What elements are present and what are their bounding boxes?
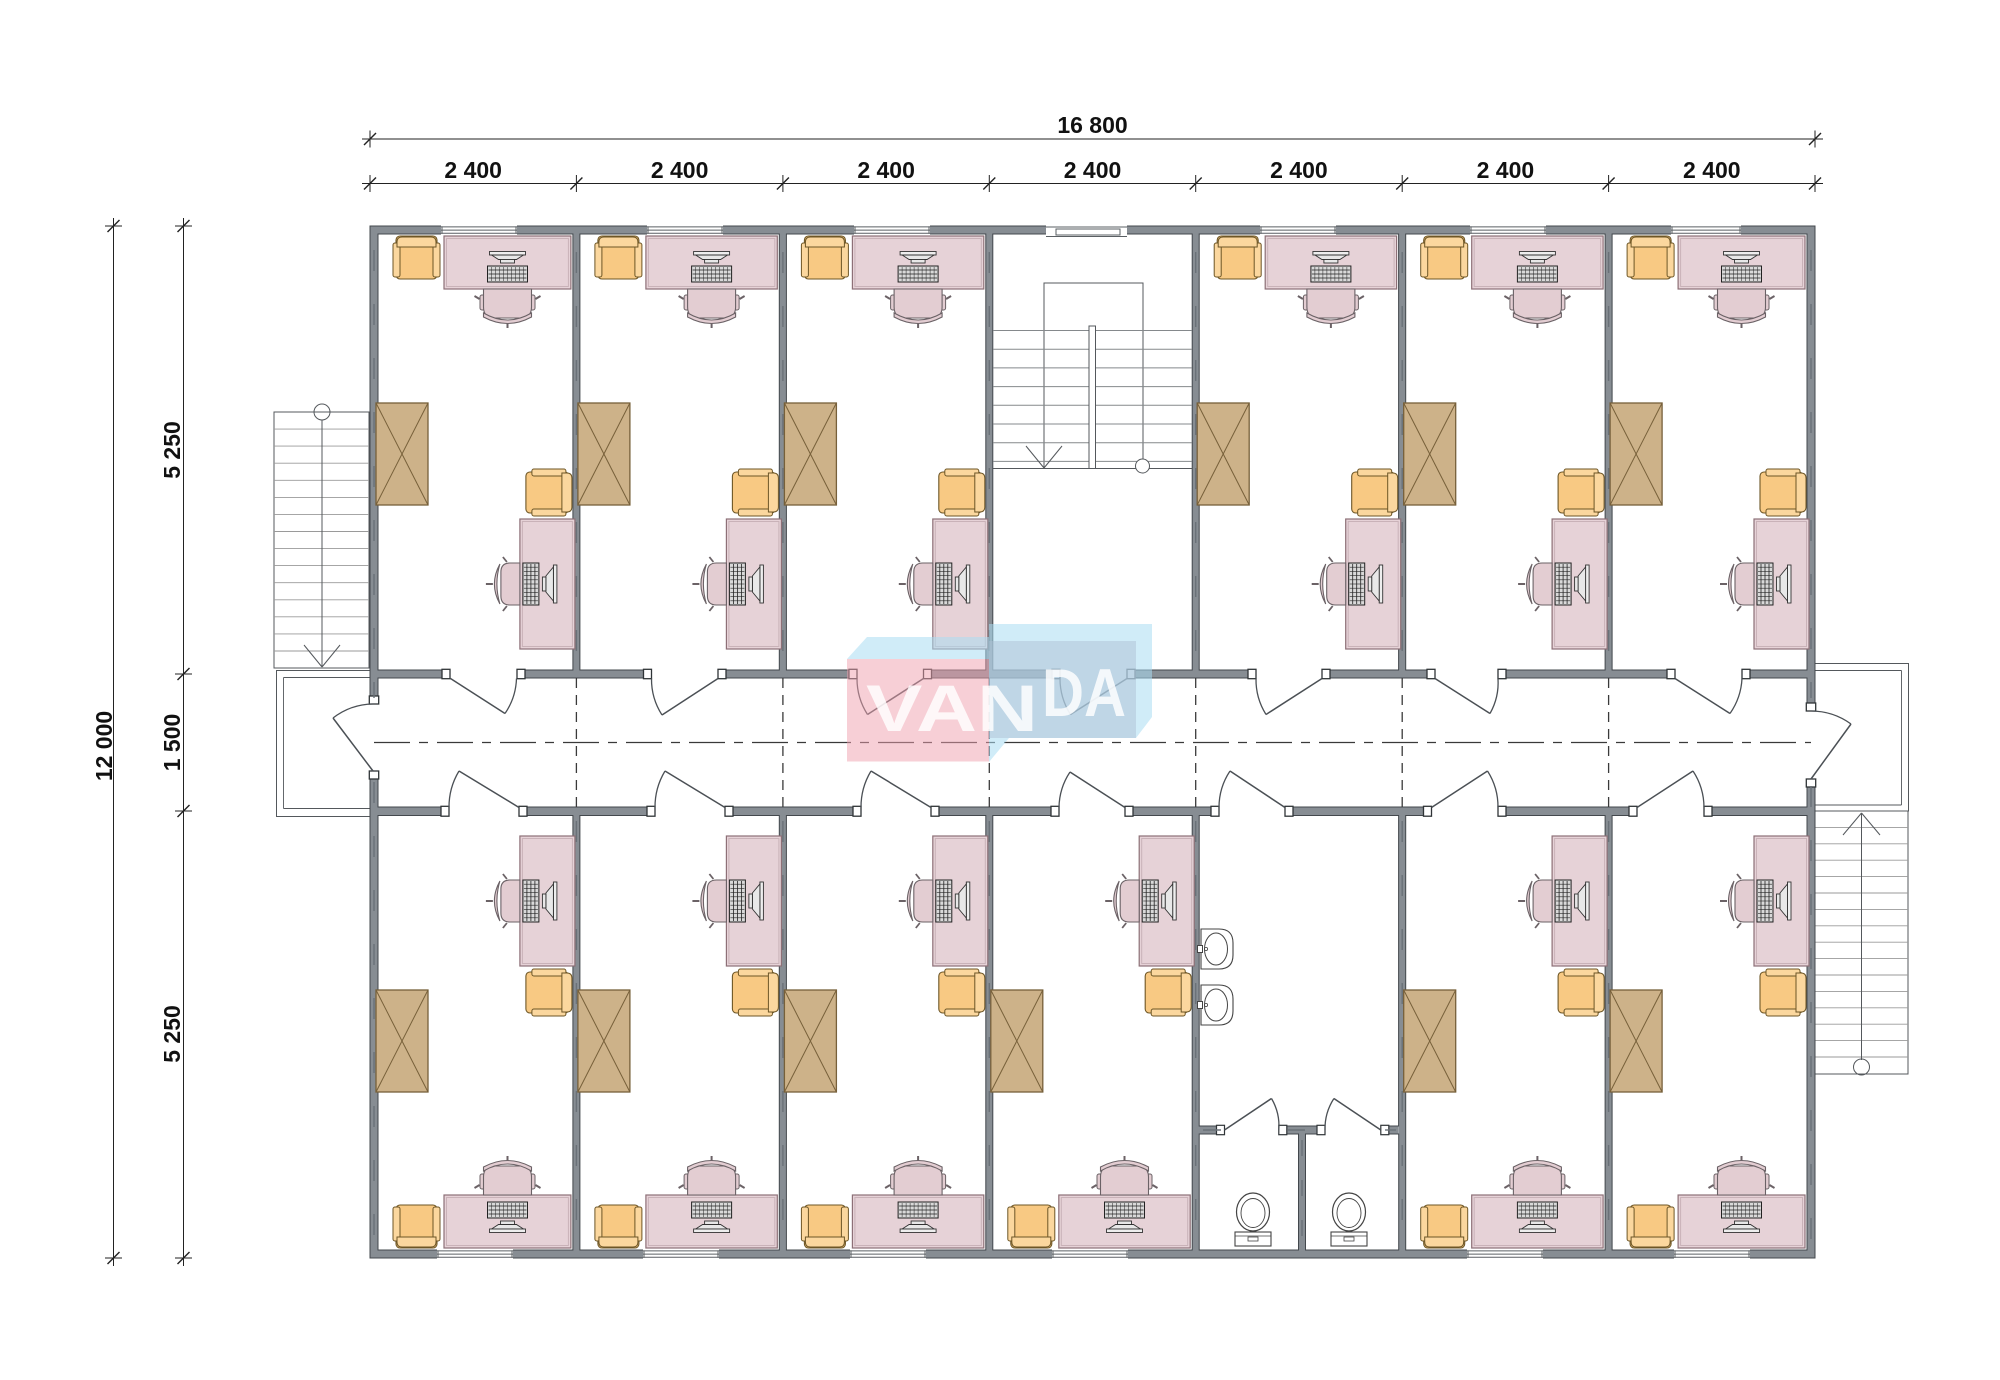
svg-text:2 400: 2 400 (444, 157, 502, 183)
svg-text:2 400: 2 400 (651, 157, 709, 183)
svg-text:16 800: 16 800 (1057, 112, 1127, 138)
svg-text:DA: DA (1042, 655, 1126, 731)
svg-text:1 500: 1 500 (159, 714, 185, 772)
svg-text:5 250: 5 250 (159, 421, 185, 479)
svg-text:2 400: 2 400 (1683, 157, 1741, 183)
svg-text:2 400: 2 400 (1477, 157, 1535, 183)
svg-text:12 000: 12 000 (91, 711, 117, 781)
svg-text:5 250: 5 250 (159, 1005, 185, 1063)
svg-text:VAN: VAN (866, 671, 1038, 745)
svg-text:2 400: 2 400 (1270, 157, 1328, 183)
svg-text:2 400: 2 400 (857, 157, 915, 183)
svg-text:2 400: 2 400 (1064, 157, 1122, 183)
